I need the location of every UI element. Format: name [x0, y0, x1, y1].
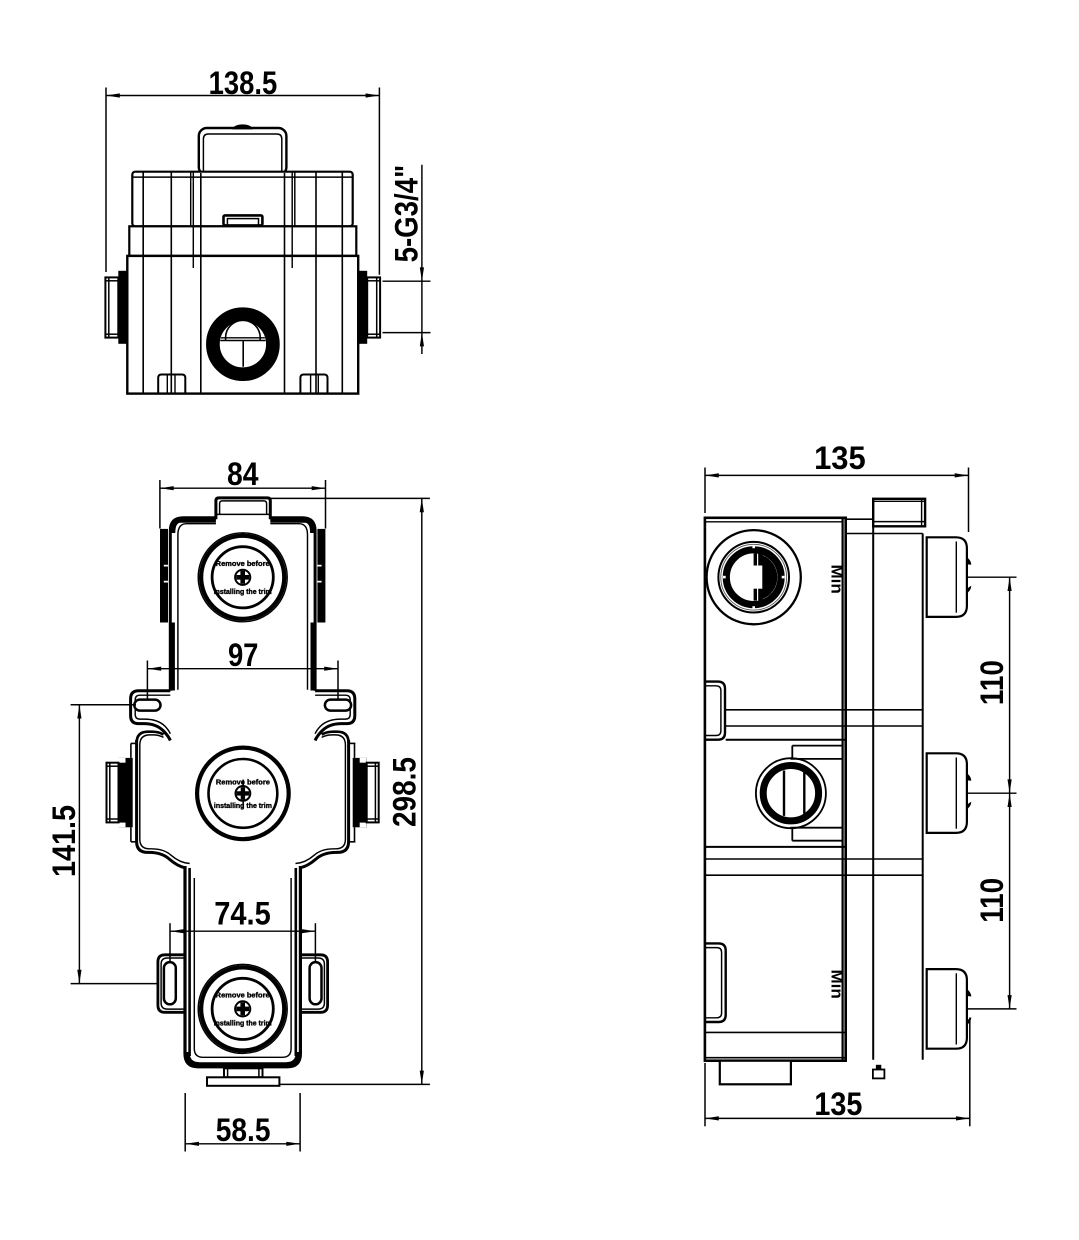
svg-text:97: 97 [228, 637, 259, 673]
svg-text:Min: Min [828, 565, 847, 594]
svg-text:Min: Min [828, 970, 847, 999]
svg-text:installing the trim: installing the trim [214, 587, 272, 596]
svg-text:135: 135 [814, 1086, 862, 1122]
svg-text:141.5: 141.5 [46, 805, 82, 877]
svg-text:installing the trim: installing the trim [214, 801, 272, 810]
svg-text:installing the trim: installing the trim [214, 1019, 272, 1028]
svg-text:135: 135 [814, 440, 866, 476]
svg-text:5-G3/4": 5-G3/4" [388, 165, 424, 263]
svg-text:84: 84 [227, 456, 259, 492]
svg-text:74.5: 74.5 [214, 896, 271, 932]
svg-text:110: 110 [974, 660, 1010, 705]
svg-text:58.5: 58.5 [216, 1112, 271, 1148]
svg-text:110: 110 [974, 878, 1010, 923]
svg-text:Remove before: Remove before [216, 991, 270, 1000]
svg-text:Remove before: Remove before [216, 559, 270, 568]
svg-text:298.5: 298.5 [387, 757, 423, 827]
